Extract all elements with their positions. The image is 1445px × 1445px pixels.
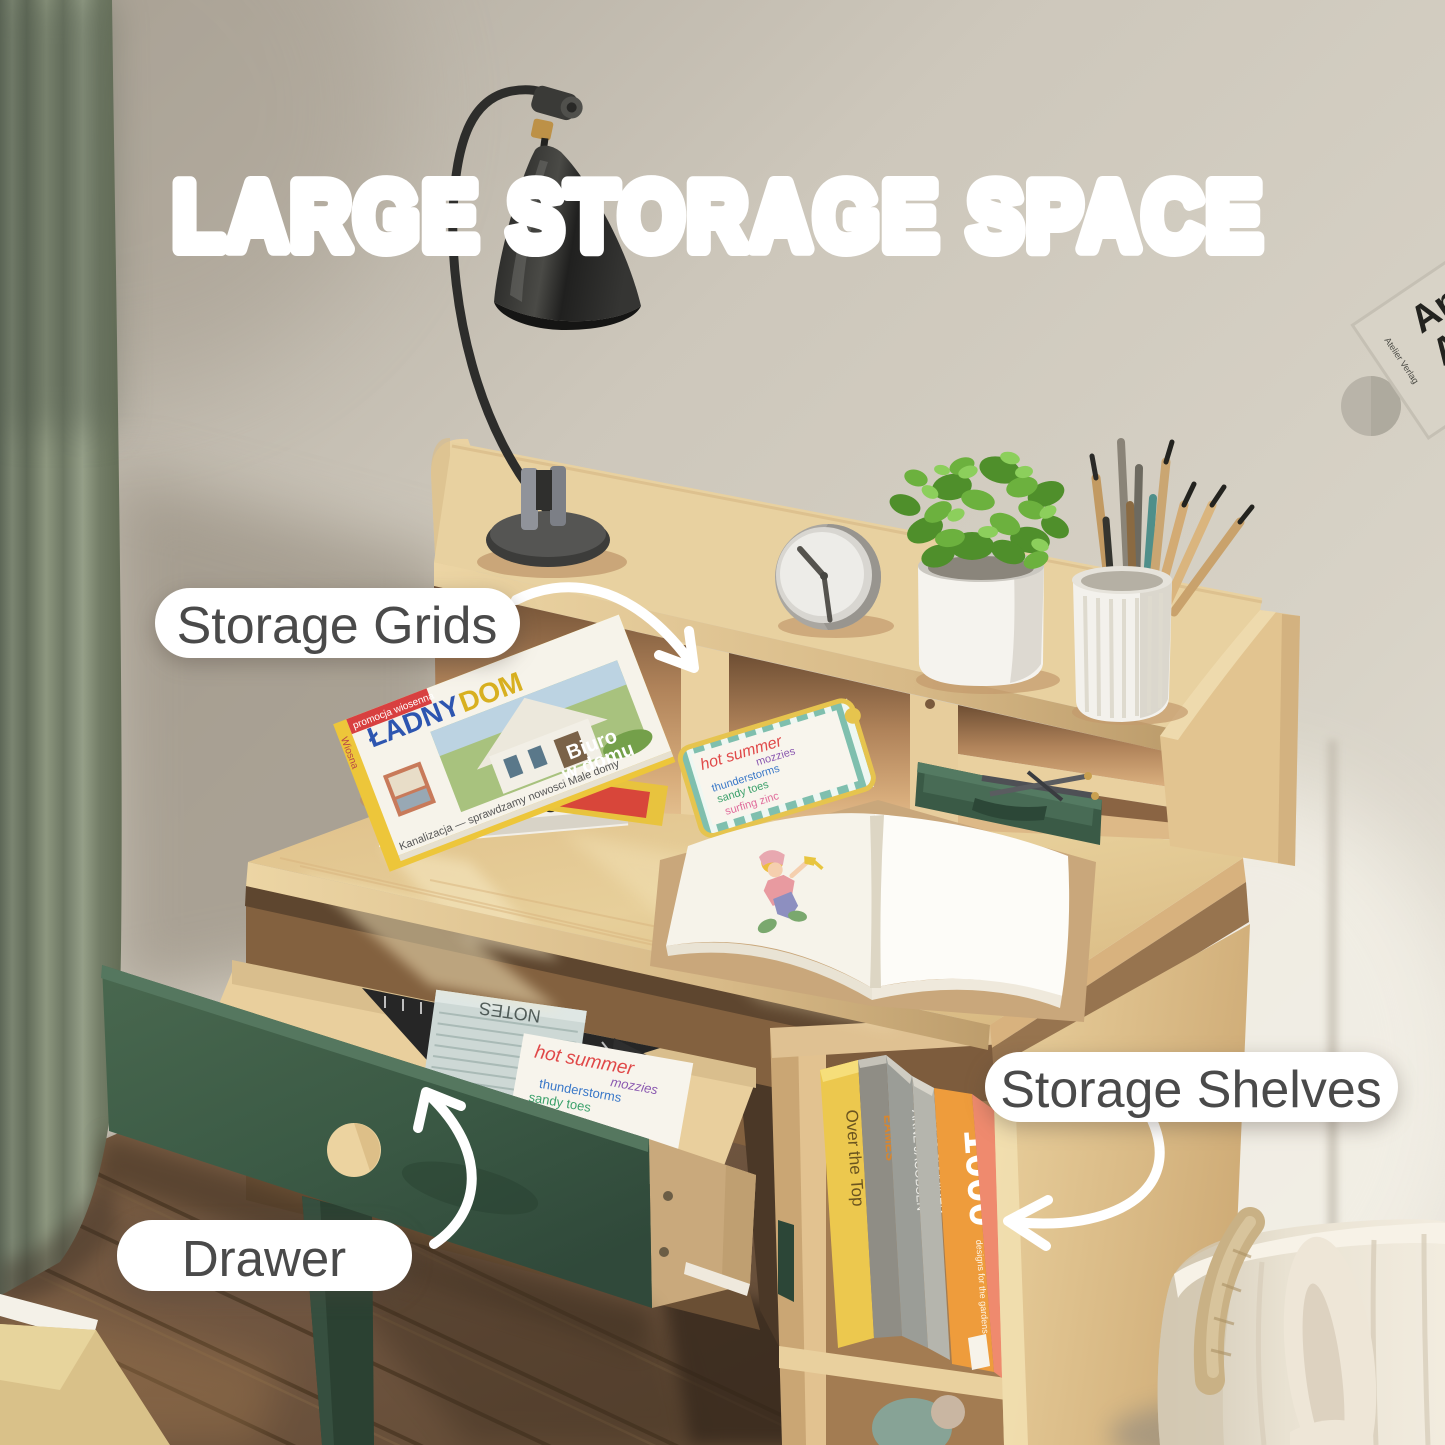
svg-text:Storage Shelves: Storage Shelves [1000, 1061, 1382, 1119]
svg-text:LARGE STORAGE SPACE: LARGE STORAGE SPACE [173, 163, 1265, 270]
svg-text:Storage Grids: Storage Grids [177, 597, 498, 655]
svg-text:Drawer: Drawer [182, 1230, 346, 1287]
